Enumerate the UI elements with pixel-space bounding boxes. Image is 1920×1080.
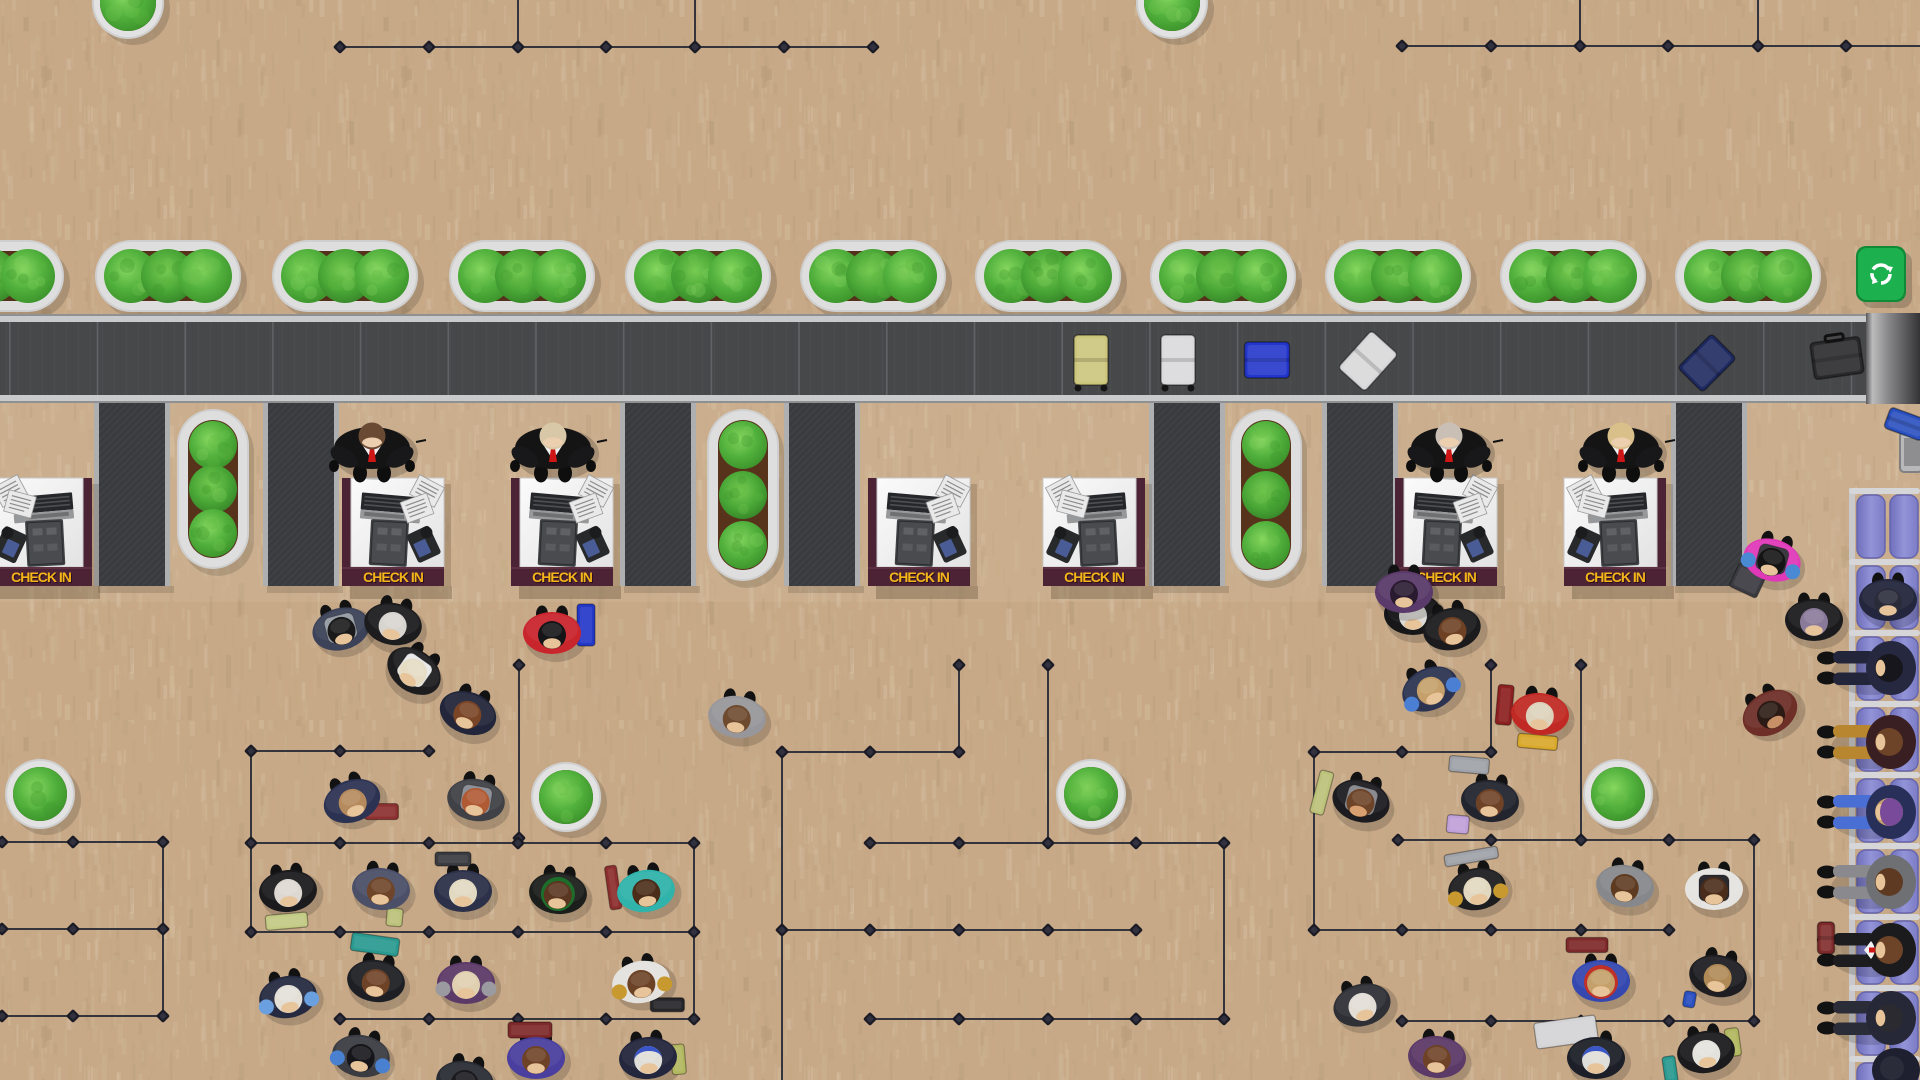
svg-text:CHECK IN: CHECK IN [363,569,424,585]
svg-text:CHECK IN: CHECK IN [889,569,950,585]
svg-text:CHECK IN: CHECK IN [1585,569,1646,585]
svg-text:CHECK IN: CHECK IN [532,569,593,585]
svg-text:CHECK IN: CHECK IN [11,569,72,585]
svg-text:CHECK IN: CHECK IN [1064,569,1125,585]
